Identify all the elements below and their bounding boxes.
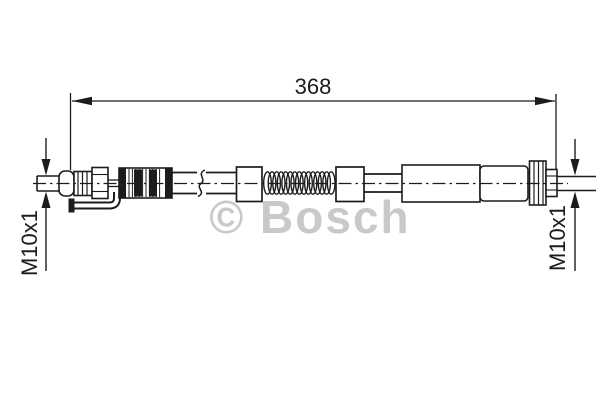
left-fitting — [37, 168, 172, 213]
brake-hose-diagram: © Bosch — [0, 0, 600, 400]
length-dimension — [71, 93, 557, 170]
down-arrowhead-icon — [42, 159, 51, 176]
coil-loop — [305, 172, 313, 194]
thread-label-right: M10x1 — [545, 205, 571, 271]
up-arrowhead-icon — [571, 192, 580, 209]
left-arrowhead-icon — [72, 97, 92, 106]
up-arrowhead-icon — [42, 192, 51, 209]
thread-label-left: M10x1 — [17, 210, 43, 276]
length-dimension-label: 368 — [295, 74, 332, 100]
grommet-left — [237, 167, 263, 202]
brake-hose-drawing — [0, 0, 600, 400]
right-thread-dimension — [571, 139, 580, 271]
down-arrowhead-icon — [571, 159, 580, 176]
grommet-right — [336, 167, 364, 202]
right-arrowhead-icon — [535, 97, 555, 106]
